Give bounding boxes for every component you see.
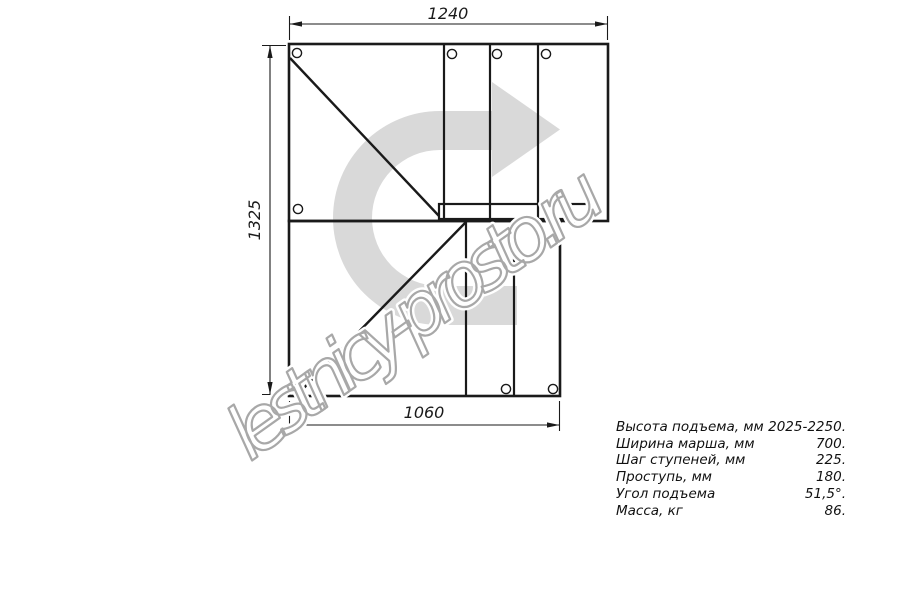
- spec-value: 51,5°.: [805, 486, 846, 503]
- spec-row: Ширина марша, мм 700.: [616, 436, 846, 453]
- spec-value: 225.: [816, 452, 846, 469]
- hole: [548, 384, 557, 393]
- hole: [492, 49, 501, 58]
- hole: [501, 384, 510, 393]
- spec-label: Шаг ступеней, мм: [616, 452, 745, 469]
- stair-plan-drawing: 1240 1325 1060 lestnicy-prosto.ru lestni…: [0, 0, 900, 600]
- spec-value: 180.: [816, 469, 846, 486]
- spec-table: Высота подъема, мм 2025-2250. Ширина мар…: [616, 419, 846, 519]
- hole: [293, 204, 302, 213]
- dimension-left-height: 1325: [245, 46, 286, 395]
- dim-arrowhead: [595, 21, 608, 26]
- spec-label: Высота подъема, мм: [616, 419, 764, 436]
- dimension-left-label: 1325: [245, 200, 264, 241]
- hole: [292, 48, 301, 57]
- spec-label: Проступь, мм: [616, 469, 712, 486]
- spec-row: Проступь, мм 180.: [616, 469, 846, 486]
- dimension-top-width: 1240: [290, 4, 608, 40]
- dim-arrowhead: [267, 46, 272, 59]
- spec-row: Масса, кг 86.: [616, 503, 846, 520]
- dimension-top-label: 1240: [428, 4, 469, 23]
- spec-value: 700.: [816, 436, 846, 453]
- spec-row: Высота подъема, мм 2025-2250.: [616, 419, 846, 436]
- spec-row: Угол подъема 51,5°.: [616, 486, 846, 503]
- hole: [447, 49, 456, 58]
- dimension-bottom-label: 1060: [404, 403, 445, 422]
- spec-value: 2025-2250.: [768, 419, 846, 436]
- dim-arrowhead: [290, 21, 303, 26]
- hole: [541, 49, 550, 58]
- spec-row: Шаг ступеней, мм 225.: [616, 452, 846, 469]
- spec-label: Ширина марша, мм: [616, 436, 755, 453]
- watermark-outline-text: lestnicy-prosto.ru: [211, 152, 618, 477]
- watermark: lestnicy-prosto.ru lestnicy-prosto.ru: [211, 152, 618, 477]
- dim-arrowhead: [547, 422, 560, 427]
- spec-value: 86.: [825, 503, 846, 520]
- spec-label: Масса, кг: [616, 503, 683, 520]
- spec-label: Угол подъема: [616, 486, 715, 503]
